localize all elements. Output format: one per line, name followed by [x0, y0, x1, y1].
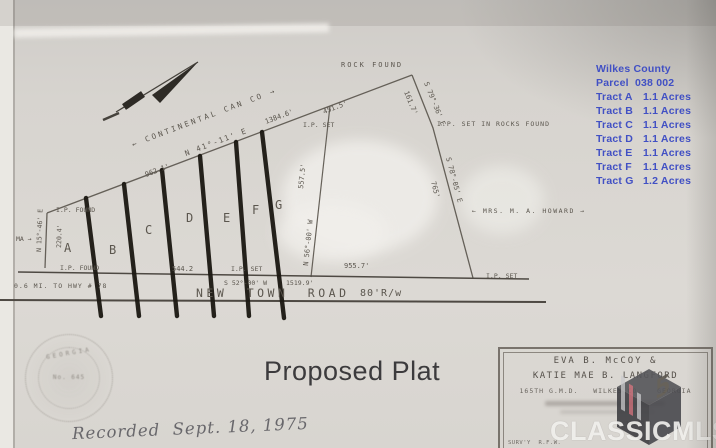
- label-length-1384: 1384.6': [264, 108, 294, 126]
- divider-c-d: [162, 170, 177, 316]
- tract-row: Tract E1.1 Acres: [596, 146, 691, 160]
- tract-row: Tract D1.1 Acres: [596, 132, 691, 146]
- tract-name: Tract G: [596, 174, 643, 188]
- label-length-955: 955.7': [344, 262, 369, 270]
- tract-row: Tract B1.1 Acres: [596, 104, 691, 118]
- label-length-west: 220.4': [55, 224, 64, 248]
- tract-name: Tract E: [596, 146, 643, 160]
- tract-name: Tract C: [596, 118, 643, 132]
- tract-letter-d: D: [186, 211, 193, 225]
- tract-acres: 1.1 Acres: [643, 90, 691, 104]
- label-ip-found-bottom: I.P. FOUND: [60, 264, 99, 272]
- tract-row: Tract G1.2 Acres: [596, 174, 691, 188]
- label-ip-set-top: I.P. SET: [303, 121, 334, 129]
- tract-name: Tract A: [596, 90, 643, 104]
- label-ip-set-mid: I.P. SET: [231, 265, 262, 273]
- tract-letter-f: F: [252, 203, 259, 217]
- photo-right-shading: [686, 0, 716, 448]
- label-ip-set-right: I.P. SET: [486, 272, 517, 280]
- label-road-name: NEW TOWN ROAD: [196, 286, 350, 300]
- tract-letter-a: A: [64, 241, 72, 255]
- label-length-962: 962.1': [144, 162, 170, 178]
- scanned-plat-photo: ROCK FOUND ← CONTINENTAL CAN CO → N 41°-…: [0, 0, 716, 448]
- parcel-info-overlay: Wilkes County Parcel 038 002 Tract A1.1 …: [596, 62, 691, 188]
- divider-b-c: [124, 184, 139, 316]
- stamp-number-text: No. 645: [25, 374, 113, 381]
- watermark-classic-text: CLASSIC: [550, 416, 672, 446]
- tract-row: Tract F1.1 Acres: [596, 160, 691, 174]
- tract-letter-g: G: [275, 198, 282, 212]
- divider-a-b: [86, 198, 101, 316]
- north-arrow-icon: [103, 62, 198, 120]
- surveyor-seal-stamp: GEORGIA No. 645: [25, 334, 113, 422]
- label-ip-found-top: I.P. FOUND: [56, 206, 95, 214]
- tract-row: Tract C1.1 Acres: [596, 118, 691, 132]
- tract-acres: 1.2 Acres: [643, 174, 691, 188]
- label-ip-set-rocks: I.P. SET IN ROCKS FOUND: [437, 120, 550, 128]
- label-bearing-west: N 15°-46' E: [35, 209, 45, 252]
- label-hwy-note: 0.6 MI. TO HWY # 78: [14, 282, 107, 290]
- tract-letter-e: E: [223, 211, 230, 225]
- label-length-544: 544.2: [172, 265, 193, 273]
- label-rock-found: ROCK FOUND: [341, 61, 403, 69]
- tract-name: Tract D: [596, 132, 643, 146]
- label-mrs-howard: ← MRS. M. A. HOWARD →: [472, 207, 586, 215]
- road-south-edge: [0, 300, 546, 302]
- whiteout-blobs: [277, 140, 544, 262]
- west-boundary-line: [45, 213, 47, 268]
- tract-letters: A B C D E F G: [64, 198, 282, 257]
- label-road-rw: 80'R/w: [360, 288, 402, 299]
- county-name: Wilkes County: [596, 62, 691, 76]
- tract-acres: 1.1 Acres: [643, 104, 691, 118]
- tract-acres: 1.1 Acres: [643, 118, 691, 132]
- tract-acres: 1.1 Acres: [643, 132, 691, 146]
- tract-acres: 1.1 Acres: [643, 160, 691, 174]
- label-adjoiner-west: MA →: [16, 235, 32, 243]
- tract-letter-c: C: [145, 223, 152, 237]
- tract-letter-b: B: [109, 243, 116, 257]
- page-title: Proposed Plat: [264, 356, 440, 387]
- owner-name-1: EVA B. McCOY &: [500, 356, 711, 366]
- parcel-number: Parcel 038 002: [596, 76, 691, 90]
- tract-name: Tract B: [596, 104, 643, 118]
- label-length-451: 451.5': [322, 99, 348, 115]
- tract-row: Tract A1.1 Acres: [596, 90, 691, 104]
- label-length-161: 161.7': [402, 90, 419, 116]
- tract-name: Tract F: [596, 160, 643, 174]
- tract-acres: 1.1 Acres: [643, 146, 691, 160]
